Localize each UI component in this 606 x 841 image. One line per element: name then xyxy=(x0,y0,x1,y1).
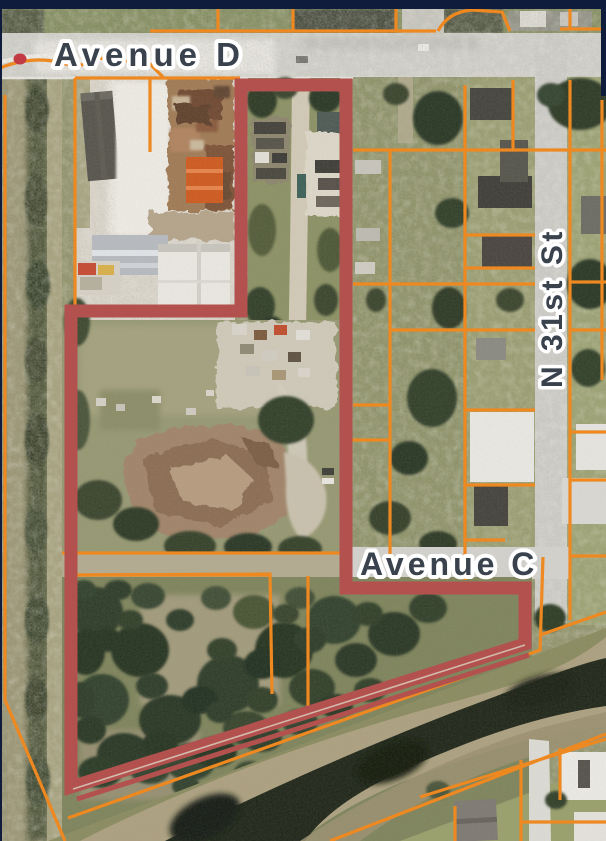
svg-text:Avenue D: Avenue D xyxy=(54,36,245,73)
svg-text:N 31st St: N 31st St xyxy=(536,228,569,388)
svg-text:Avenue C: Avenue C xyxy=(360,546,538,582)
